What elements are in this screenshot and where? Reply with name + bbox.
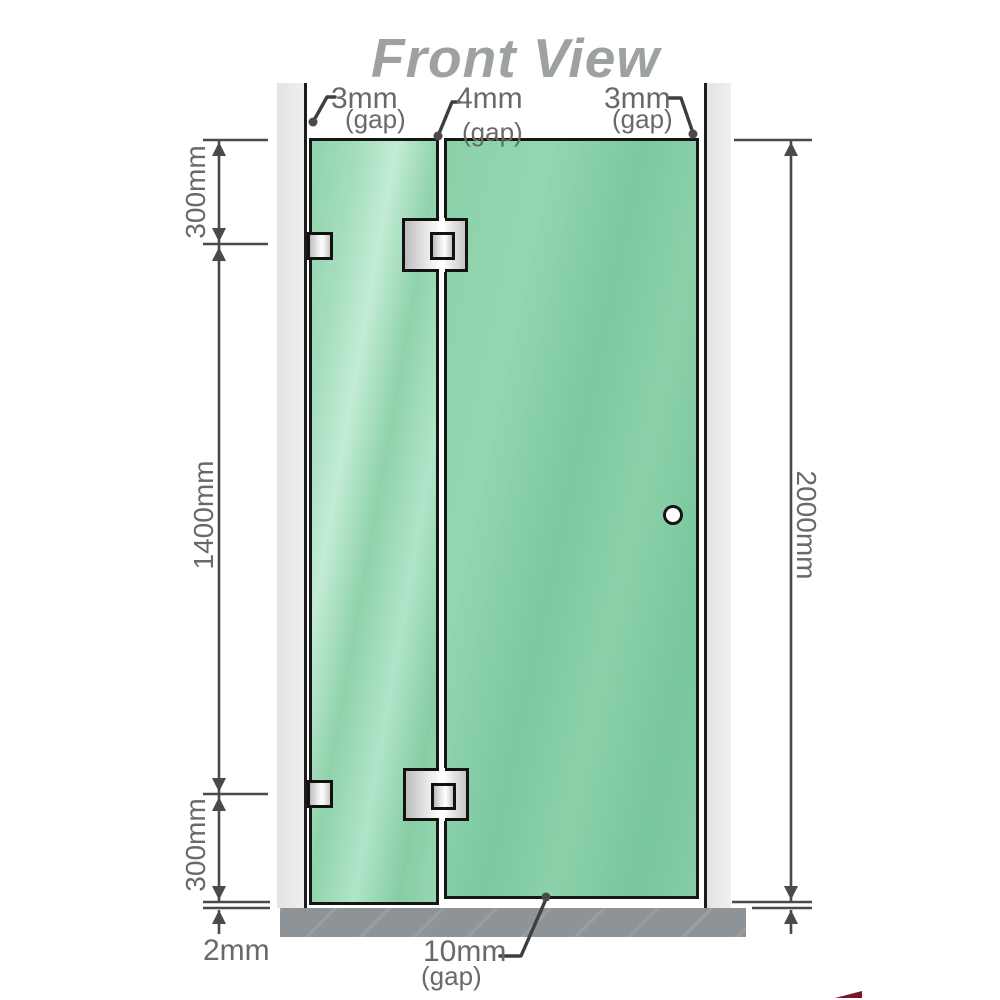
diagram-title: Front View — [371, 26, 660, 90]
arrowhead-up-icon — [784, 910, 798, 924]
dimension-label-1400mm: 1400mm — [190, 461, 218, 570]
gap-label-bottom-suffix: (gap) — [421, 963, 482, 989]
dimension-label-2000mm: 2000mm — [792, 471, 820, 580]
hinge-bottom-knuckle — [431, 783, 456, 810]
leader-dot — [309, 118, 318, 127]
front-view-diagram: Front View — [0, 0, 1000, 1000]
gap-label-top-left-suffix: (gap) — [345, 106, 406, 132]
wall-bracket-bottom — [307, 780, 333, 808]
hinge-top-knuckle — [430, 232, 455, 260]
dimension-label-300mm-bottom: 300mm — [182, 798, 210, 891]
arrowhead-up-icon — [212, 142, 226, 156]
gap-label-top-middle-value: 4mm — [456, 84, 523, 114]
arrowhead-down-icon — [212, 228, 226, 242]
arrowhead-up-icon — [212, 910, 226, 924]
arrowhead-down-icon — [212, 778, 226, 792]
gap-label-top-right-suffix: (gap) — [612, 106, 673, 132]
left-wall — [277, 83, 304, 908]
arrowhead-up-icon — [212, 247, 226, 261]
arrowhead-up-icon — [784, 142, 798, 156]
floor-gap-label: 2mm — [203, 936, 270, 966]
gap-label-top-middle-suffix: (gap) — [462, 119, 523, 145]
wall-bracket-top — [307, 232, 333, 260]
right-wall — [707, 83, 731, 908]
watermark-red-mark — [835, 991, 862, 998]
door-glass-panel — [444, 138, 699, 899]
door-handle-knob — [663, 505, 683, 525]
arrowhead-up-icon — [212, 797, 226, 811]
floor-base — [280, 908, 746, 937]
dimension-label-300mm-top: 300mm — [182, 145, 210, 238]
arrowhead-down-icon — [212, 886, 226, 900]
arrowhead-down-icon — [784, 886, 798, 900]
